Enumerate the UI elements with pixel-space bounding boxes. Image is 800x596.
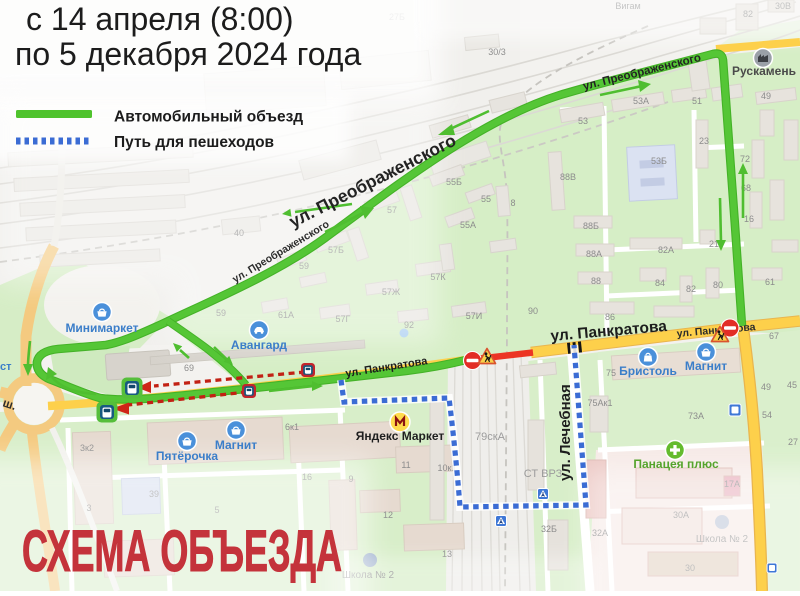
svg-text:53А: 53А: [633, 96, 649, 106]
svg-text:16: 16: [744, 214, 754, 224]
svg-text:Минимаркет: Минимаркет: [65, 321, 138, 335]
svg-text:3к2: 3к2: [80, 443, 94, 453]
svg-text:Магнит: Магнит: [685, 359, 727, 373]
svg-text:72: 72: [740, 154, 750, 164]
svg-text:32Б: 32Б: [541, 524, 557, 534]
svg-text:Автомобильный объезд: Автомобильный объезд: [114, 109, 303, 126]
svg-text:82: 82: [686, 284, 696, 294]
svg-text:Рускамень: Рускамень: [732, 64, 796, 78]
svg-text:61: 61: [765, 277, 775, 287]
svg-text:СХЕМА ОБЪЕЗДА: СХЕМА ОБЪЕЗДА: [22, 519, 342, 584]
svg-text:53Б: 53Б: [651, 156, 667, 166]
svg-text:12: 12: [383, 510, 393, 520]
svg-text:86: 86: [605, 312, 615, 322]
svg-text:55Б: 55Б: [446, 177, 462, 187]
svg-text:55А: 55А: [460, 220, 476, 230]
svg-text:80: 80: [713, 280, 723, 290]
svg-text:Пятёрочка: Пятёрочка: [156, 449, 219, 463]
svg-text:82А: 82А: [658, 245, 674, 255]
svg-text:Магнит: Магнит: [215, 438, 257, 452]
svg-text:79скА: 79скА: [475, 431, 506, 443]
svg-text:49: 49: [761, 382, 771, 392]
svg-text:6к1: 6к1: [285, 422, 299, 432]
svg-text:57И: 57И: [466, 311, 482, 321]
svg-text:с 14 апреля (8:00): с 14 апреля (8:00): [26, 1, 294, 37]
svg-text:ул. Лечебная: ул. Лечебная: [557, 384, 574, 481]
svg-text:69: 69: [184, 363, 194, 373]
svg-text:Яндекс Маркет: Яндекс Маркет: [356, 429, 445, 443]
svg-text:45: 45: [787, 380, 797, 390]
svg-text:Авангард: Авангард: [231, 338, 288, 352]
svg-text:30/3: 30/3: [488, 47, 506, 57]
svg-text:23: 23: [699, 136, 709, 146]
svg-text:Бристоль: Бристоль: [619, 364, 677, 378]
svg-text:27: 27: [788, 437, 798, 447]
svg-text:90: 90: [528, 306, 538, 316]
svg-text:51: 51: [692, 96, 702, 106]
svg-text:49: 49: [761, 91, 771, 101]
svg-text:88: 88: [591, 276, 601, 286]
svg-text:11: 11: [401, 460, 410, 470]
svg-text:73А: 73А: [688, 411, 704, 421]
svg-text:84: 84: [655, 278, 665, 288]
svg-text:88В: 88В: [560, 172, 576, 182]
svg-text:ст: ст: [0, 361, 12, 373]
svg-text:Панацея плюс: Панацея плюс: [633, 457, 719, 471]
svg-text:75: 75: [606, 368, 616, 378]
svg-text:88А: 88А: [586, 249, 602, 259]
svg-text:55: 55: [481, 194, 491, 204]
svg-text:75Ак1: 75Ак1: [588, 398, 613, 408]
svg-text:53: 53: [578, 116, 588, 126]
svg-text:88Б: 88Б: [583, 221, 599, 231]
svg-text:Путь для пешеходов: Путь для пешеходов: [114, 134, 274, 151]
svg-text:67: 67: [769, 331, 779, 341]
svg-text:54: 54: [762, 410, 772, 420]
svg-text:8: 8: [510, 198, 515, 208]
svg-text:по 5 декабря 2024 года: по 5 декабря 2024 года: [15, 36, 361, 72]
